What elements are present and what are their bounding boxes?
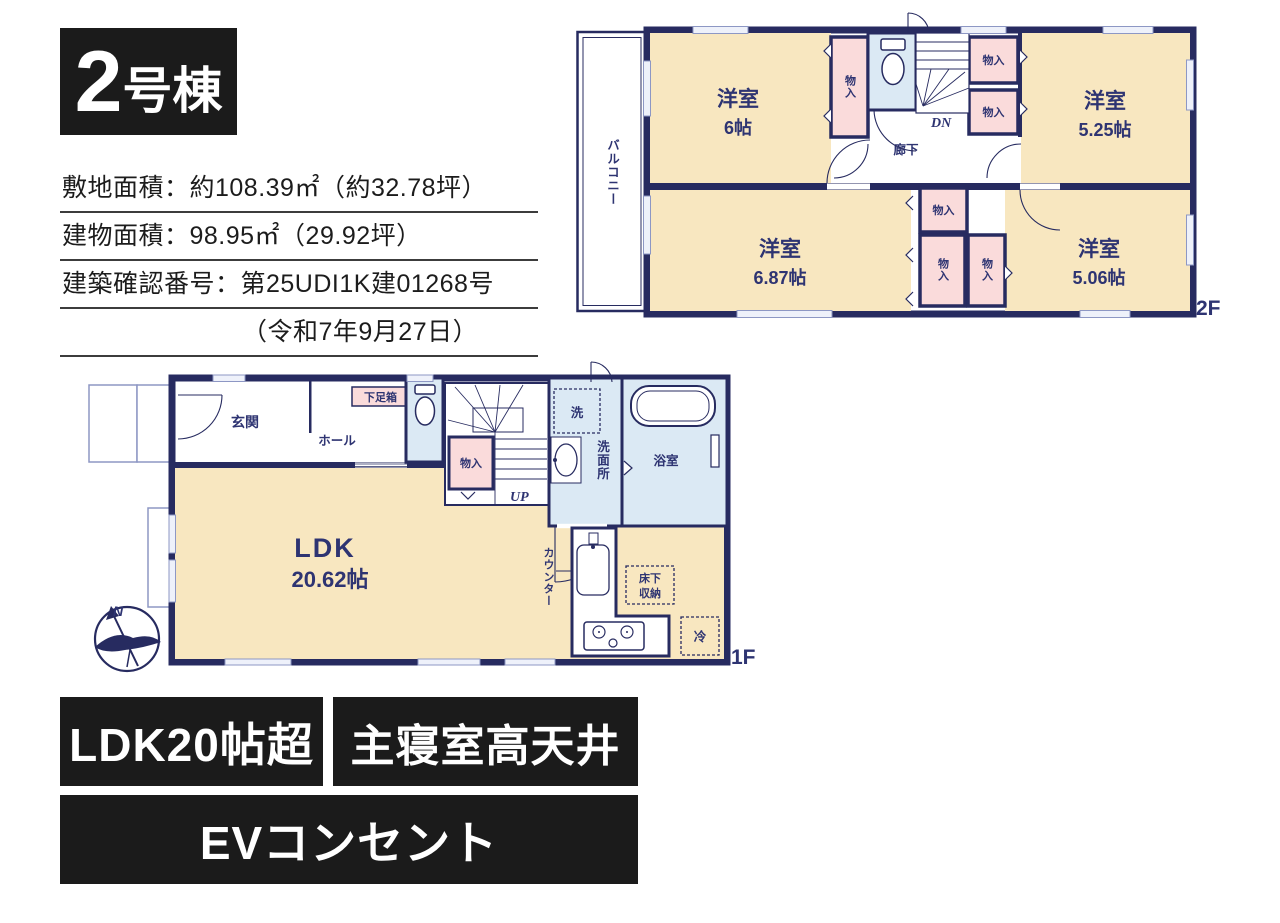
building-number-suffix: 号棟	[122, 66, 222, 116]
feature-badge-ldk: LDK20帖超	[60, 697, 323, 786]
porch	[89, 385, 172, 462]
confirmation-date-line: （令和7年9月27日）	[60, 310, 538, 357]
closet-label: 物入	[937, 257, 950, 282]
counter-label: カウンター	[542, 547, 555, 607]
toilet-icon	[881, 39, 905, 85]
building-number: 2	[75, 39, 123, 125]
window-bay	[148, 508, 172, 607]
flyer-page: 2 号棟 敷地面積：約108.39㎡（約32.78坪） 建物面積：98.95㎡（…	[0, 0, 1280, 923]
ldk-size-label: 20.62帖	[291, 567, 368, 592]
fridge-label: 冷	[694, 629, 707, 644]
room-size: 5.25帖	[1078, 119, 1131, 140]
toilet-icon	[415, 385, 435, 425]
bathroom-label: 浴室	[653, 453, 679, 468]
floor-label-1f: 1F	[731, 646, 756, 669]
shoe-box-label: 下足箱	[364, 390, 397, 404]
balcony: バルコニー	[578, 32, 647, 311]
floor-plan-1f: 玄関 ホール 下足箱	[85, 360, 780, 675]
room-name: 洋室	[1084, 89, 1126, 113]
washroom-label: 洗面所	[595, 439, 609, 481]
room-name: 洋室	[717, 87, 759, 111]
compass-north-label: N	[113, 603, 124, 619]
floor-label-2f: 2F	[1196, 297, 1221, 318]
washroom: 洗 洗面所	[549, 362, 622, 526]
compass-icon: N	[95, 603, 161, 671]
stairs-down-label: DN	[930, 116, 952, 131]
ldk-label: LDK	[294, 533, 356, 563]
closet-center-right: 物入	[968, 235, 1005, 306]
closet-label: 物入	[460, 456, 482, 470]
building-title-box: 2 号棟	[60, 28, 237, 135]
hall-label: ホール	[318, 434, 356, 448]
room-name: 洋室	[1078, 237, 1120, 261]
bathtub-icon	[631, 386, 715, 426]
closet-label: 物入	[844, 74, 857, 99]
toilet-room-1f	[406, 378, 443, 462]
floor-plan-2f: バルコニー 物入 物入 物入 物入	[575, 10, 1235, 318]
building-area-line: 建物面積：98.95㎡（29.92坪）	[60, 214, 538, 261]
closet-label: 物入	[981, 257, 994, 282]
underfloor-storage-label-1: 床下	[639, 571, 661, 585]
property-info: 敷地面積：約108.39㎡（約32.78坪） 建物面積：98.95㎡（29.92…	[60, 166, 538, 358]
room-size: 6.87帖	[753, 267, 806, 288]
feature-badge-ceiling: 主寝室高天井	[333, 697, 638, 786]
room-name: 洋室	[759, 237, 801, 261]
bathroom: 浴室	[622, 378, 727, 526]
closet-ne-lower: 物入	[969, 90, 1018, 134]
washer-label: 洗	[571, 405, 584, 420]
underfloor-storage-label-2: 収納	[639, 586, 661, 600]
closet-ne-upper: 物入	[969, 37, 1018, 83]
confirmation-number-line: 建築確認番号：第25UDI1K建01268号	[60, 262, 538, 309]
room-size: 5.06帖	[1072, 267, 1125, 288]
towel-bar	[711, 435, 719, 467]
closet-center-top: 物入	[920, 188, 967, 232]
stove-icon	[584, 622, 644, 650]
closet-center-left: 物入	[920, 235, 965, 306]
sink-icon	[551, 437, 581, 483]
feature-badge-ev: EVコンセント	[60, 795, 638, 884]
closet-strip-west: 物入	[831, 37, 868, 137]
closet-label: 物入	[933, 203, 955, 217]
entrance-hall-divider	[309, 378, 312, 433]
shoe-box: 下足箱	[352, 387, 409, 406]
balcony-label: バルコニー	[605, 138, 619, 206]
site-area-line: 敷地面積：約108.39㎡（約32.78坪）	[60, 166, 538, 213]
closet-1f: 物入	[449, 437, 493, 499]
entrance-label: 玄関	[231, 414, 259, 430]
stairs-up-label: UP	[510, 490, 529, 505]
room-size: 6帖	[724, 117, 752, 138]
toilet-room-2f	[868, 33, 916, 110]
closet-label: 物入	[983, 105, 1005, 119]
closet-label: 物入	[983, 53, 1005, 67]
